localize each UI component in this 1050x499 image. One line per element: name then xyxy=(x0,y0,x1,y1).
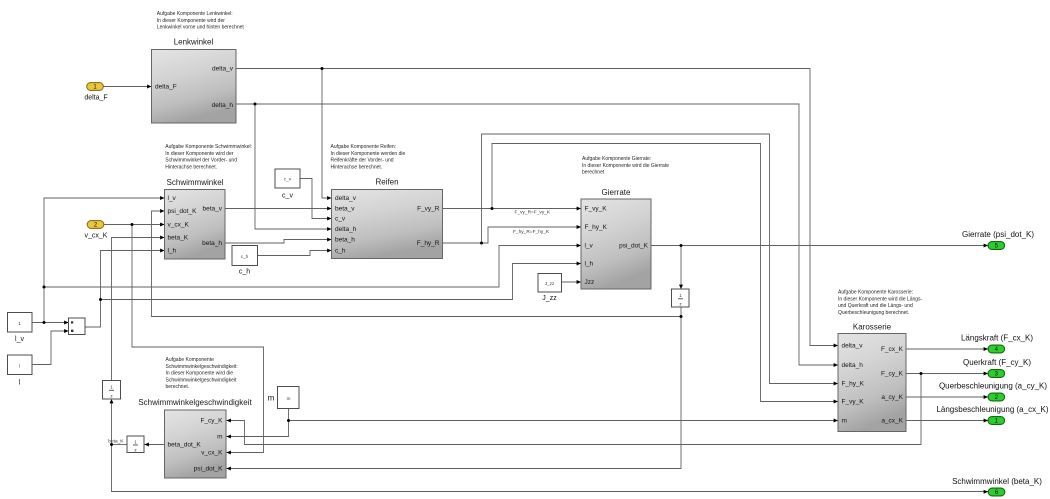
svg-text:c_h: c_h xyxy=(241,254,249,259)
svg-text:v_cx_K: v_cx_K xyxy=(85,233,108,240)
svg-text:J_zz: J_zz xyxy=(545,281,555,286)
svg-text:J_zz: J_zz xyxy=(542,295,557,302)
svg-text:F_vy_K: F_vy_K xyxy=(585,206,608,213)
svg-text:psi_dot_K: psi_dot_K xyxy=(194,466,224,473)
svg-text:Reifen: Reifen xyxy=(375,178,398,187)
svg-text:a_cx_K: a_cx_K xyxy=(881,418,903,425)
svg-text:Aufgabe Komponente Gierrate:: Aufgabe Komponente Gierrate: xyxy=(582,156,651,162)
svg-text:l: l xyxy=(19,380,21,387)
svg-text:Längsbeschleunigung (a_cx_K): Längsbeschleunigung (a_cx_K) xyxy=(936,405,1048,414)
svg-text:Lenkwinkel vorne und hinten be: Lenkwinkel vorne und hinten berechnet xyxy=(157,25,245,31)
svg-text:Hinterachse berechnet.: Hinterachse berechnet. xyxy=(331,164,383,170)
svg-text:m: m xyxy=(287,396,291,401)
svg-text:c_v: c_v xyxy=(282,193,293,200)
svg-text:1: 1 xyxy=(679,293,682,298)
svg-text:In dieser Komponente werden di: In dieser Komponente werden die xyxy=(331,151,406,157)
svg-text:Aufgabe Komponente: Aufgabe Komponente xyxy=(166,357,215,363)
svg-text:a_cy_K: a_cy_K xyxy=(881,394,903,401)
svg-text:m: m xyxy=(842,418,847,425)
svg-text:Gierrate: Gierrate xyxy=(602,188,631,197)
svg-text:beta_h: beta_h xyxy=(335,237,355,244)
svg-text:und Querkraft und die Längs- u: und Querkraft und die Längs- und xyxy=(838,303,913,309)
svg-text:c_v: c_v xyxy=(284,177,292,182)
svg-text:l_h: l_h xyxy=(585,261,594,268)
svg-text:m: m xyxy=(217,434,222,441)
svg-text:c_v: c_v xyxy=(335,216,346,223)
svg-text:berechnet: berechnet xyxy=(582,170,605,176)
svg-text:F_hy_R=F_hy_K: F_hy_R=F_hy_K xyxy=(513,229,550,235)
svg-text:Längskraft (F_cx_K): Längskraft (F_cx_K) xyxy=(961,334,1033,343)
svg-text:F_hy_K: F_hy_K xyxy=(842,381,865,388)
svg-text:Hinterachse berechnet.: Hinterachse berechnet. xyxy=(165,164,217,170)
svg-text:l_v: l_v xyxy=(15,336,24,343)
svg-text:beta_K: beta_K xyxy=(168,235,189,242)
svg-text:beta_dot_K: beta_dot_K xyxy=(168,442,202,449)
svg-text:In dieser Komponente wird die: In dieser Komponente wird die xyxy=(166,371,234,377)
svg-text:Schwimmwinkelgeschwindigkeit: Schwimmwinkelgeschwindigkeit xyxy=(166,377,237,383)
svg-text:Schwimmwinkel der Vorder- und: Schwimmwinkel der Vorder- und xyxy=(165,158,237,164)
svg-text:l_h: l_h xyxy=(168,248,177,255)
svg-text:F_vy_K: F_vy_K xyxy=(842,399,865,406)
svg-text:Reifenkräfte der Vorder- und: Reifenkräfte der Vorder- und xyxy=(331,158,394,164)
svg-text:Aufgabe Komponente Karosserie:: Aufgabe Komponente Karosserie: xyxy=(838,290,913,296)
svg-text:psi_dot_K: psi_dot_K xyxy=(619,243,649,250)
svg-text:1: 1 xyxy=(110,385,113,390)
svg-text:In dieser Komponente wird die: In dieser Komponente wird die Gierrate xyxy=(582,163,669,169)
svg-text:delta_h: delta_h xyxy=(335,226,357,233)
svg-text:Schwimmwinkelgeschwindigkeit:: Schwimmwinkelgeschwindigkeit: xyxy=(166,364,238,370)
svg-text:F_cx_K: F_cx_K xyxy=(881,346,904,353)
svg-text:In dieser Komponente wird der: In dieser Komponente wird der xyxy=(157,18,225,24)
svg-text:Gierrate (psi_dot_K): Gierrate (psi_dot_K) xyxy=(962,230,1034,239)
svg-text:F_hy_K: F_hy_K xyxy=(585,224,608,231)
svg-text:F_vy_R: F_vy_R xyxy=(417,206,440,213)
svg-text:delta_h: delta_h xyxy=(212,102,234,109)
svg-text:delta_F: delta_F xyxy=(155,84,177,91)
svg-text:Jzz: Jzz xyxy=(585,279,595,286)
svg-text:F_vy_R=F_vy_K: F_vy_R=F_vy_K xyxy=(515,210,551,216)
svg-text:Aufgabe Komponente Lenkwinkel:: Aufgabe Komponente Lenkwinkel: xyxy=(157,11,233,17)
svg-text:delta_v: delta_v xyxy=(212,66,234,73)
svg-text:beta_h: beta_h xyxy=(202,240,222,247)
svg-text:l_v: l_v xyxy=(585,243,594,250)
svg-text:Lenkwinkel: Lenkwinkel xyxy=(174,38,214,47)
svg-text:delta_v: delta_v xyxy=(335,195,357,202)
svg-text:l: l xyxy=(19,364,20,369)
svg-text:Querbeschleunigung berechnet.: Querbeschleunigung berechnet. xyxy=(838,310,909,316)
svg-text:In dieser Komponente wird die: In dieser Komponente wird die Längs- xyxy=(838,296,923,302)
svg-text:F_hy_R: F_hy_R xyxy=(417,240,440,247)
svg-text:Querkraft (F_cy_K): Querkraft (F_cy_K) xyxy=(963,358,1031,367)
svg-text:Schwimmwinkelgeschwindigkeit: Schwimmwinkelgeschwindigkeit xyxy=(138,398,252,407)
svg-text:F_cy_K: F_cy_K xyxy=(200,418,223,425)
svg-text:v_cx_K: v_cx_K xyxy=(168,222,190,229)
svg-text:c_h: c_h xyxy=(239,269,250,276)
svg-text:1: 1 xyxy=(134,440,137,445)
svg-text:c_h: c_h xyxy=(335,248,346,255)
svg-text:delta_h: delta_h xyxy=(842,362,864,369)
svg-text:delta_v: delta_v xyxy=(842,343,864,350)
svg-text:Karosserie: Karosserie xyxy=(853,323,892,332)
svg-text:Aufgabe Komponente Schwimmwink: Aufgabe Komponente Schwimmwinkel: xyxy=(165,144,252,150)
svg-text:beta_K: beta_K xyxy=(108,438,124,444)
svg-text:beta_v: beta_v xyxy=(202,206,222,213)
svg-text:In dieser Komponente wird der: In dieser Komponente wird der xyxy=(165,151,233,157)
svg-text:berechnet.: berechnet. xyxy=(166,384,190,390)
svg-text:delta_F: delta_F xyxy=(84,95,107,102)
svg-text:v_cx_K: v_cx_K xyxy=(201,450,223,457)
svg-text:F_cy_K: F_cy_K xyxy=(881,371,904,378)
svg-text:Aufgabe Komponente Reifen:: Aufgabe Komponente Reifen: xyxy=(331,144,397,150)
svg-text:1: 1 xyxy=(18,321,21,326)
svg-text:l_v: l_v xyxy=(168,195,177,202)
svg-text:m: m xyxy=(268,394,275,403)
svg-text:beta_v: beta_v xyxy=(335,206,355,213)
svg-text:psi_dot_K: psi_dot_K xyxy=(168,208,198,215)
svg-text:Schwimmwinkel (beta_K): Schwimmwinkel (beta_K) xyxy=(952,477,1042,486)
svg-text:Schwimmwinkel: Schwimmwinkel xyxy=(167,178,224,187)
svg-text:Querbeschleunigung (a_cy_K): Querbeschleunigung (a_cy_K) xyxy=(939,382,1047,391)
